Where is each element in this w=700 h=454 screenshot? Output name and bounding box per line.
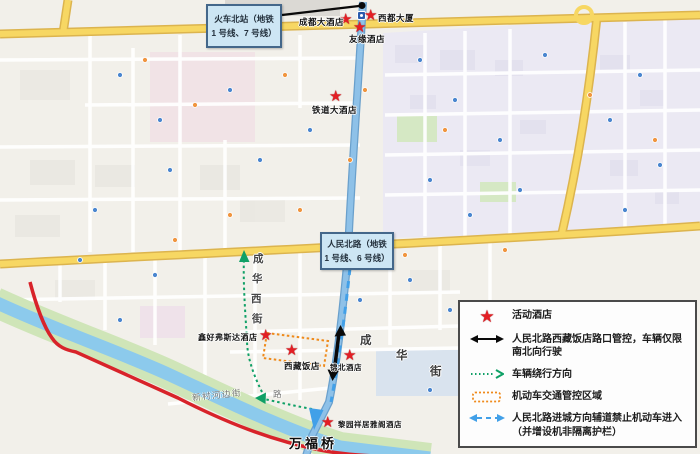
legend-label: 车辆绕行方向 — [512, 368, 687, 382]
callout-line: 人民北路（地铁 — [322, 240, 392, 249]
callout-renmin-north-road: 人民北路（地铁 1 号线、6 号线） — [320, 232, 394, 270]
street-label-chenghua-char: 华 — [396, 347, 408, 363]
dotted-rect-icon — [468, 390, 506, 403]
traffic-control-map: ★ ★ ★ ★ ★ ★ ★ ★ 成都大酒店 西都大厦 友缘酒店 铁道大酒店 鑫好… — [0, 0, 700, 454]
callout-line: 1 号线、6 号线） — [322, 254, 392, 263]
legend-item-control-zone: 机动车交通管控区域 — [468, 390, 687, 404]
hotel-label-tiedao-hotel: 铁道大酒店 — [312, 104, 357, 116]
double-arrow-icon — [468, 333, 506, 344]
callout-line: 火车北站（地铁 — [208, 15, 280, 24]
legend-label: 活动酒店 — [512, 309, 687, 323]
activity-hotel-star-icon: ★ — [343, 348, 356, 363]
hotel-label-xidu-building: 西都大厦 — [378, 12, 414, 24]
legend-item-activity-hotel: ★ 活动酒店 — [468, 309, 687, 324]
street-label-chenghua-west-char: 成 — [253, 251, 264, 266]
blue-dash-arrow-icon — [468, 412, 506, 423]
bridge-label-wanfu: 万福桥 — [289, 433, 337, 452]
legend-box: ★ 活动酒店 人民北路西藏饭店路口管控，车辆仅限南北向行驶 车辆绕行方向 — [458, 300, 697, 448]
hotel-label-youyuan-hotel: 友缘酒店 — [349, 33, 385, 45]
hotel-label-chengdu-hotel: 成都大酒店 — [299, 16, 344, 28]
hotel-label-xinhao-fsd-hotel: 鑫好弗斯达酒店 — [198, 332, 258, 343]
star-icon: ★ — [468, 309, 506, 324]
street-label-chenghua-west-char: 街 — [252, 311, 263, 326]
hotel-label-jinbei-hotel: 锦北酒店 — [330, 362, 362, 373]
legend-item-lane-closure: 人民北路进城方向辅道禁止机动车进入（并增设机非隔离护栏） — [468, 412, 687, 439]
street-label-chenghua-char: 成 — [360, 332, 372, 348]
street-label-chenghua-west-char: 西 — [251, 291, 262, 306]
legend-label: 人民北路西藏饭店路口管控，车辆仅限南北向行驶 — [512, 333, 687, 360]
hotel-label-liyuan-yage-hotel: 黎园祥居雅阁酒店 — [338, 419, 402, 430]
dotted-arrow-icon — [468, 368, 506, 379]
legend-label: 人民北路进城方向辅道禁止机动车进入（并增设机非隔离护栏） — [512, 412, 687, 439]
legend-label: 机动车交通管控区域 — [512, 390, 687, 404]
hotel-label-tibet-hotel: 西藏饭店 — [284, 360, 320, 372]
activity-hotel-star-icon: ★ — [321, 415, 334, 430]
street-label-chenghua-char: 街 — [430, 363, 442, 379]
street-label-lu: 路 — [273, 388, 283, 400]
callout-line: 1 号线、7 号线） — [208, 29, 280, 38]
activity-hotel-star-icon: ★ — [329, 89, 342, 104]
activity-hotel-star-icon: ★ — [285, 343, 298, 358]
legend-item-junction-control: 人民北路西藏饭店路口管控，车辆仅限南北向行驶 — [468, 333, 687, 360]
activity-hotel-star-icon: ★ — [259, 328, 272, 343]
legend-item-bypass-direction: 车辆绕行方向 — [468, 368, 687, 382]
street-label-chenghua-west-char: 华 — [252, 271, 263, 286]
callout-north-railway-station: 火车北站（地铁 1 号线、7 号线） — [206, 4, 282, 48]
